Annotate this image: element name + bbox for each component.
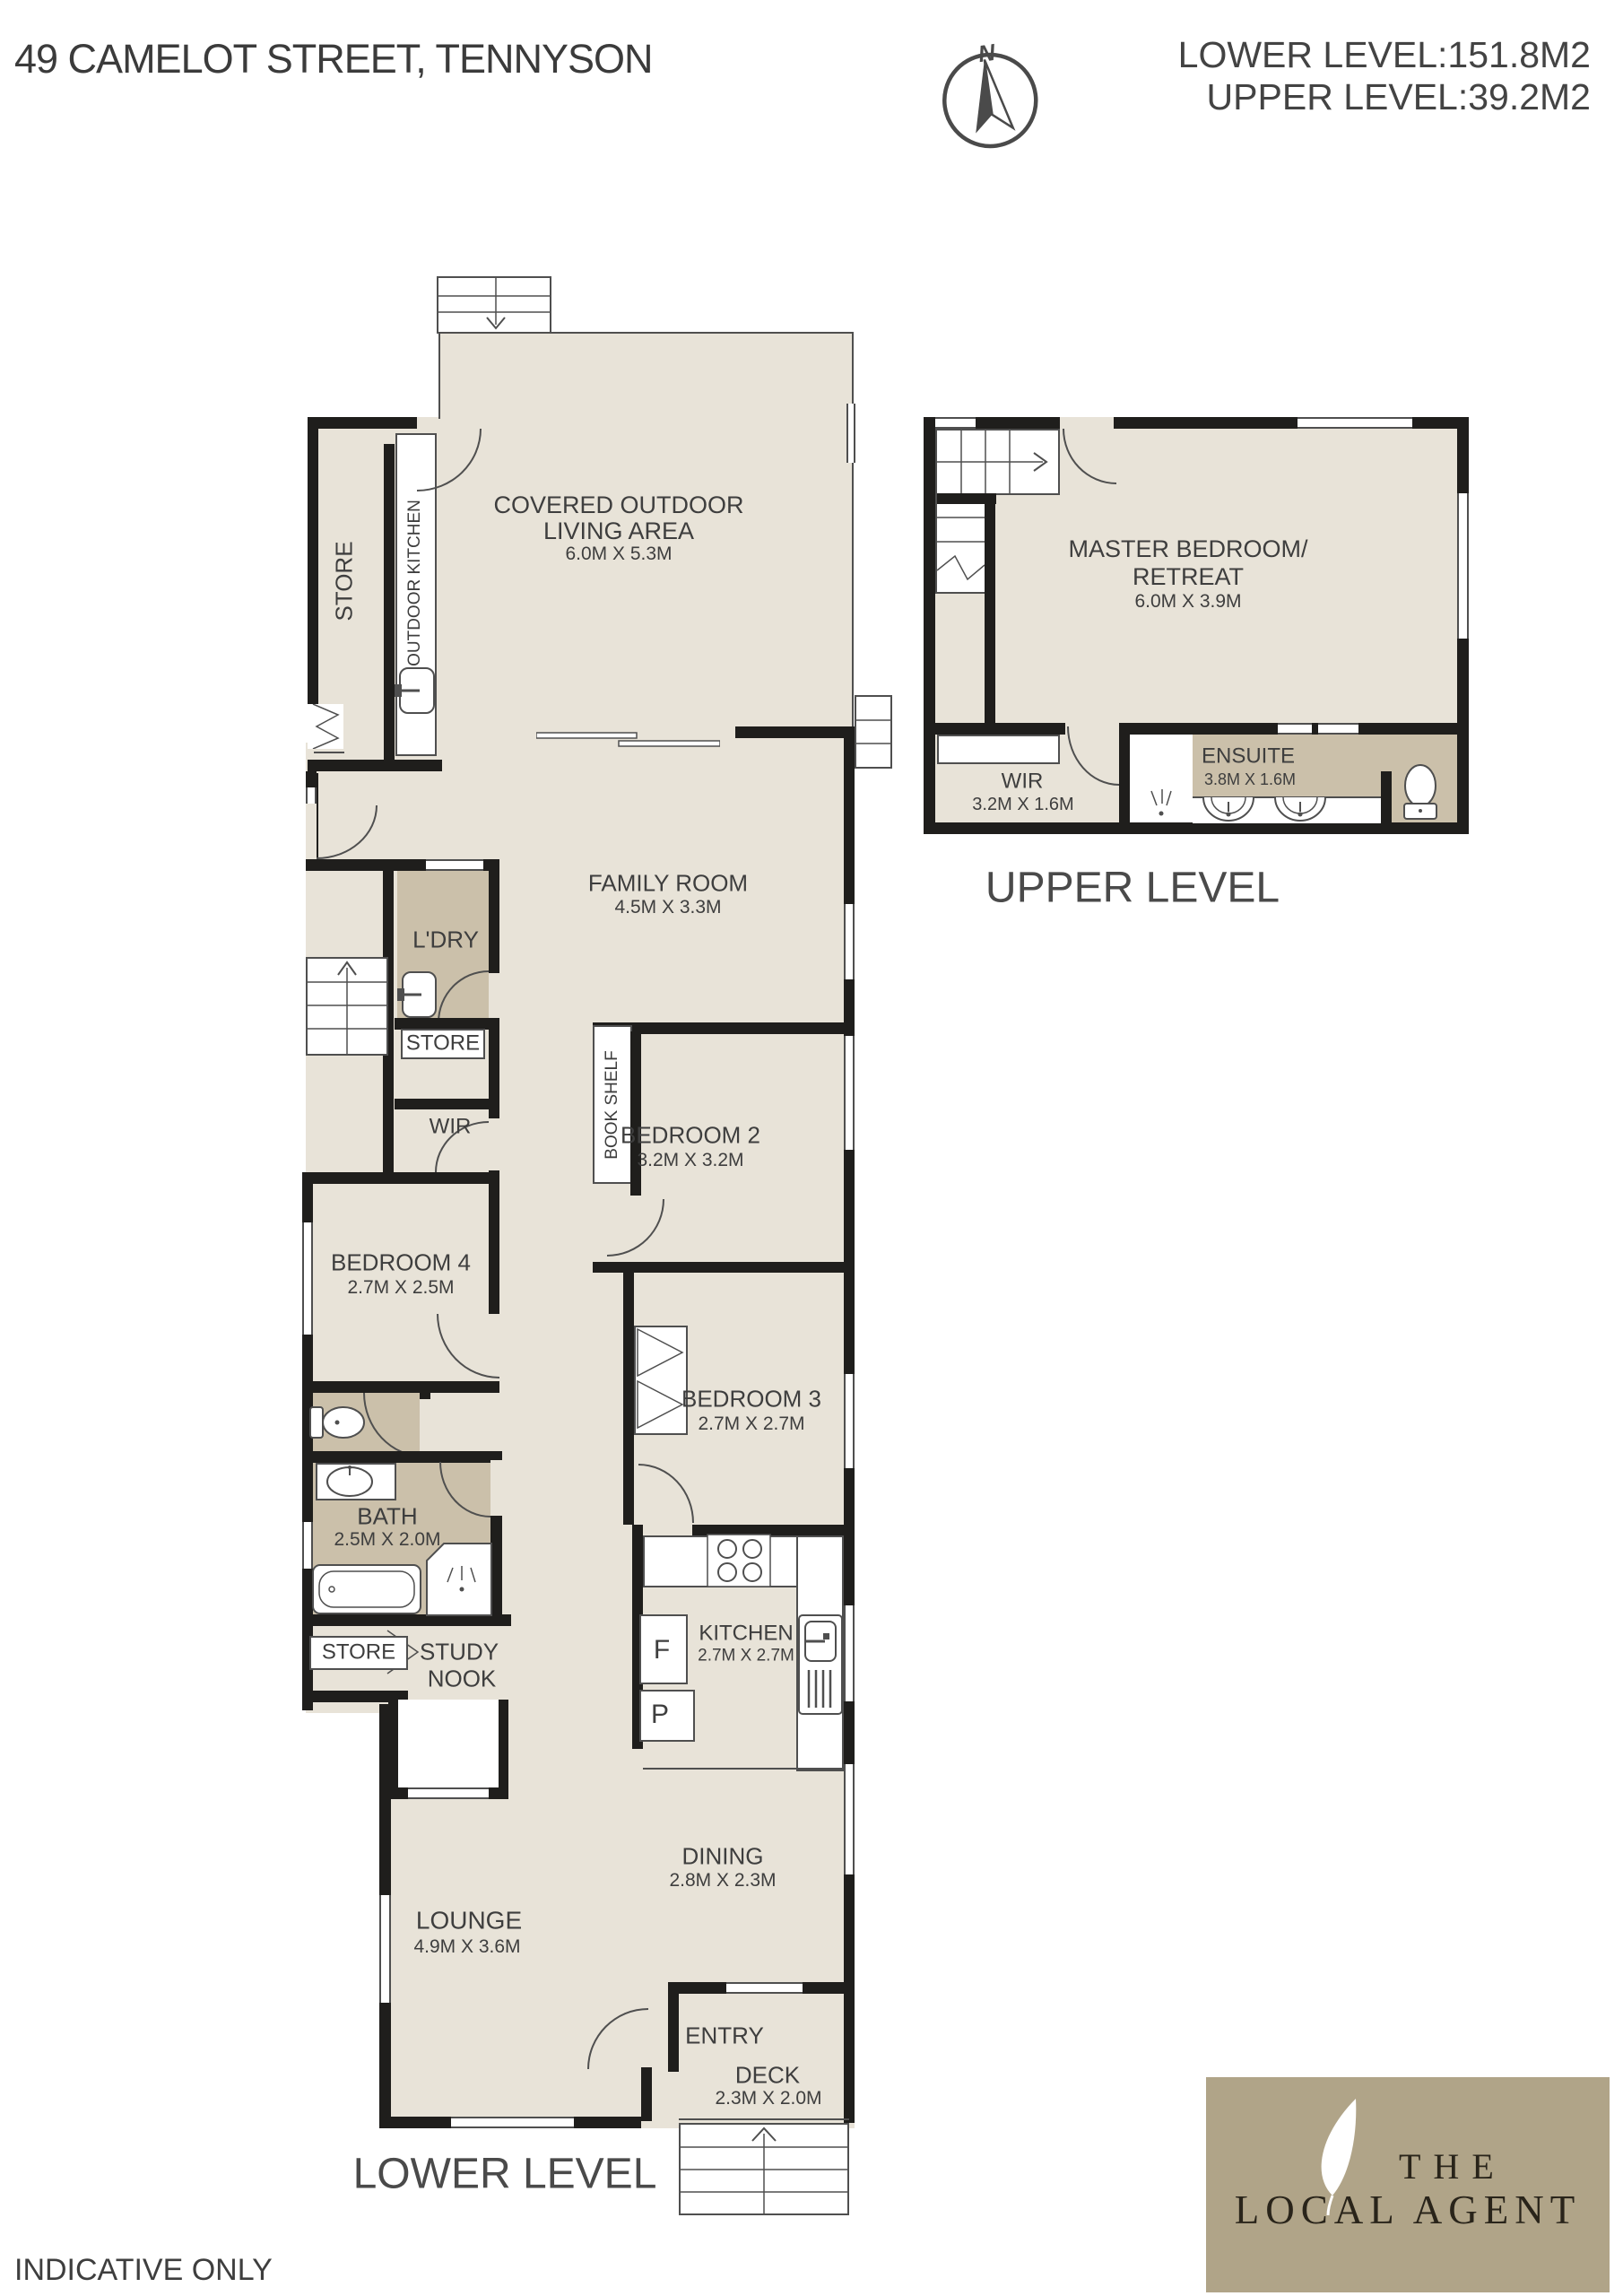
interior-stairs: [306, 957, 388, 1056]
room-dims-kitchen: 2.7M X 2.7M: [698, 1646, 794, 1665]
deck-steps: [679, 2123, 849, 2215]
room-label-entry: ENTRY: [685, 2022, 764, 2048]
window: [1298, 417, 1412, 429]
toilet-icon: [309, 1402, 367, 1443]
sliding-door: [846, 404, 855, 463]
room-label-lounge: LOUNGE: [416, 1906, 522, 1934]
svg-text:N: N: [976, 39, 998, 67]
wall: [641, 2067, 652, 2121]
area-summary: LOWER LEVEL:151.8M2 UPPER LEVEL:39.2M2: [1178, 34, 1591, 118]
top-steps: [437, 276, 551, 334]
wir-closet: [937, 735, 1060, 764]
room-label-bedroom4: BEDROOM 4: [331, 1249, 471, 1275]
room-label-master: MASTER BEDROOM/: [1068, 535, 1307, 562]
window: [934, 417, 976, 429]
window: [408, 1787, 489, 1799]
room-label-kitchen: KITCHEN: [699, 1622, 793, 1647]
wall: [1119, 735, 1130, 823]
wall: [302, 1172, 499, 1184]
window: [1318, 723, 1358, 735]
wall: [395, 1099, 499, 1109]
wall: [593, 1262, 844, 1273]
upper-level-label: UPPER LEVEL: [985, 864, 1280, 913]
wall: [924, 723, 1469, 735]
room-dims-family: 4.5M X 3.3M: [614, 897, 721, 918]
window: [426, 859, 483, 871]
room-label-laundry: L'DRY: [412, 926, 479, 952]
wall: [1381, 771, 1392, 823]
room-dims-bath: 2.5M X 2.0M: [334, 1529, 440, 1551]
room-label-ensuite: ENSUITE: [1202, 745, 1295, 770]
door-gap: [306, 804, 317, 859]
vanity-icon: [316, 1463, 396, 1500]
basin-icon: [1200, 796, 1257, 823]
wall: [308, 417, 318, 709]
room-dims-covered-outdoor: 6.0M X 5.3M: [565, 544, 672, 565]
wardrobe-icon: [634, 1326, 688, 1435]
shower-icon: [426, 1543, 492, 1616]
wall: [985, 493, 995, 734]
room-label-store-top: STORE: [331, 541, 359, 621]
upper-area-text: UPPER LEVEL:39.2M2: [1178, 76, 1591, 118]
deck-edge: [679, 2118, 849, 2120]
room-dims-bedroom3: 2.7M X 2.7M: [698, 1413, 804, 1435]
covered-outdoor-right-edge: [852, 334, 854, 733]
window: [844, 1374, 855, 1468]
covered-outdoor-left-edge: [438, 334, 440, 419]
side-steps: [855, 695, 892, 769]
bathtub-icon: [312, 1564, 421, 1614]
wall: [668, 1982, 679, 2072]
logo-line1: THE: [1399, 2145, 1506, 2187]
room-dims-bedroom2: 3.2M X 3.2M: [637, 1150, 743, 1171]
outdoor-kitchen-sink-icon: [393, 664, 438, 717]
room-dims-upper-wir: 3.2M X 1.6M: [972, 795, 1073, 814]
room-label-family: FAMILY ROOM: [588, 870, 748, 896]
kitchen-sink-icon: [798, 1614, 843, 1715]
logo-line2: LOCAL AGENT: [1235, 2187, 1582, 2233]
room-label-deck: DECK: [735, 2062, 800, 2088]
window: [844, 1036, 855, 1150]
door-gap: [489, 1118, 499, 1170]
room-dims-bedroom4: 2.7M X 2.5M: [347, 1277, 454, 1299]
room-label-bedroom3: BEDROOM 3: [681, 1386, 821, 1412]
door-gap: [490, 1460, 502, 1516]
window: [379, 1895, 391, 2003]
window: [451, 2117, 574, 2128]
laundry-tub-icon: [395, 969, 438, 1021]
upper-stairs-top: [935, 429, 1060, 495]
room-dims-master: 6.0M X 3.9M: [1134, 591, 1241, 613]
wall: [489, 1184, 499, 1314]
door-gap: [489, 973, 499, 1022]
step-line: [314, 752, 344, 753]
window: [1457, 493, 1469, 639]
wall-opening-zigzag: [308, 704, 343, 749]
stove-icon: [707, 1534, 771, 1587]
room-label-wir: WIR: [430, 1116, 472, 1140]
window: [302, 1222, 313, 1335]
window: [844, 1764, 855, 1874]
window: [302, 1522, 313, 1569]
room-label-outdoor-kitchen: OUTDOOR KITCHEN: [405, 500, 425, 666]
room-label-upper-wir: WIR: [1002, 770, 1044, 795]
room-label-bath: BATH: [357, 1503, 417, 1529]
room-label-dining: DINING: [682, 1843, 764, 1869]
door-gap: [1060, 417, 1114, 429]
window: [726, 1982, 803, 1994]
wall: [924, 822, 1469, 834]
wall: [308, 417, 417, 429]
bench-edge: [643, 1768, 844, 1770]
agency-logo: THE LOCAL AGENT: [1206, 2077, 1610, 2292]
room-label-store-bottom: STORE: [322, 1641, 395, 1665]
wall: [844, 1982, 855, 2123]
room-label-bedroom2: BEDROOM 2: [621, 1122, 760, 1148]
floorplan-page: 49 CAMELOT STREET, TENNYSON LOWER LEVEL:…: [0, 0, 1623, 2296]
window: [844, 1605, 855, 1701]
page-title: 49 CAMELOT STREET, TENNYSON: [14, 36, 653, 83]
window: [1278, 723, 1312, 735]
compass-icon: N: [937, 39, 1043, 151]
pantry-label: P: [651, 1700, 669, 1730]
wall: [499, 1700, 508, 1798]
room-label-study-nook: STUDY: [420, 1639, 499, 1665]
room-label-store-mid: STORE: [406, 1032, 480, 1057]
shower-symbol-icon: [1141, 789, 1180, 825]
room-dims-lounge: 4.9M X 3.6M: [413, 1936, 520, 1958]
room-dims-dining: 2.8M X 2.3M: [669, 1870, 776, 1892]
wall: [924, 417, 935, 834]
fridge-label: F: [654, 1635, 670, 1665]
lower-area-text: LOWER LEVEL:151.8M2: [1178, 34, 1591, 76]
wall: [308, 760, 442, 771]
room-dims-ensuite: 3.8M X 1.6M: [1204, 770, 1296, 788]
room-label-book-shelf: BOOK SHELF: [603, 1050, 622, 1159]
alcove-floor: [397, 1700, 499, 1791]
room-label-covered-outdoor: COVERED OUTDOOR: [493, 491, 743, 518]
room-label-study-nook2: NOOK: [428, 1665, 497, 1692]
room-label-master2: RETREAT: [1133, 563, 1244, 590]
room-dims-deck: 2.3M X 2.0M: [715, 2088, 821, 2109]
wall: [623, 1273, 634, 1525]
lower-level-label: LOWER LEVEL: [353, 2150, 657, 2199]
window: [844, 904, 855, 979]
sliding-door: [536, 730, 720, 750]
room-label-covered-outdoor2: LIVING AREA: [543, 517, 694, 544]
wall: [735, 726, 844, 738]
upper-stairs-lower: [935, 493, 986, 594]
wall: [302, 1381, 499, 1393]
disclaimer-text: INDICATIVE ONLY: [14, 2253, 273, 2288]
toilet-icon: [1399, 762, 1442, 822]
basin-icon: [1271, 796, 1329, 823]
